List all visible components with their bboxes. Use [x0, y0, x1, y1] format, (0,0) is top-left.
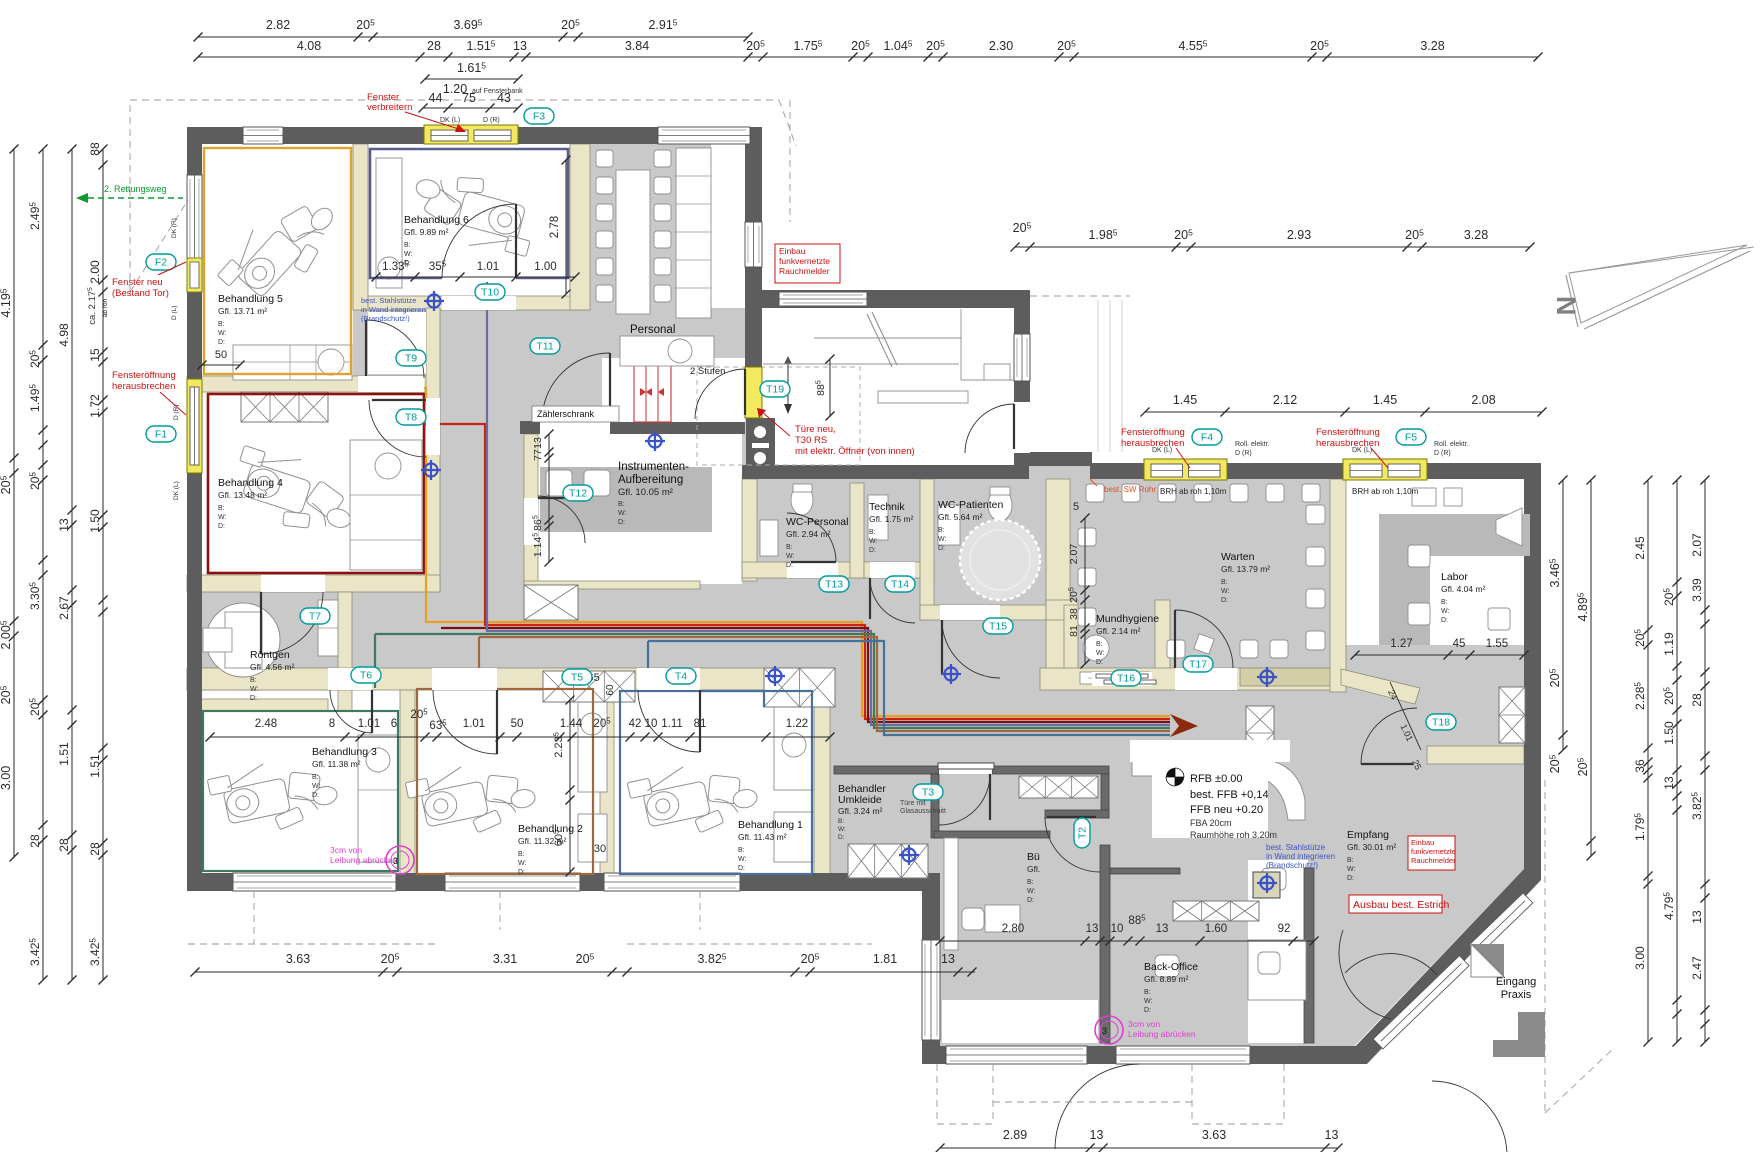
svg-text:1.51: 1.51: [57, 742, 71, 766]
svg-text:T30 RS: T30 RS: [795, 435, 827, 446]
svg-text:BRH ab roh 1,10m: BRH ab roh 1,10m: [1352, 487, 1419, 496]
svg-text:Gfl. 30.01 m²: Gfl. 30.01 m²: [1347, 842, 1396, 852]
svg-text:2.00: 2.00: [88, 260, 102, 284]
svg-text:T9: T9: [405, 353, 417, 365]
svg-text:W:: W:: [1441, 608, 1449, 615]
svg-text:D (L): D (L): [171, 306, 178, 320]
svg-text:best. SW Rohr: best. SW Rohr: [1104, 485, 1156, 494]
svg-text:T12: T12: [569, 488, 587, 500]
svg-text:B:: B:: [1027, 879, 1034, 886]
svg-text:W:: W:: [218, 330, 226, 337]
svg-text:13: 13: [1690, 910, 1704, 924]
svg-text:44: 44: [429, 91, 443, 105]
svg-text:W:: W:: [518, 860, 526, 867]
svg-text:B:: B:: [1441, 599, 1448, 606]
svg-text:43: 43: [497, 91, 511, 105]
svg-text:Behandlung 2: Behandlung 2: [518, 823, 583, 835]
svg-text:Ausbau best. Estrich: Ausbau best. Estrich: [1353, 899, 1449, 911]
svg-text:Zählerschrank: Zählerschrank: [537, 409, 595, 419]
svg-text:best. Stahlstütze: best. Stahlstütze: [1266, 843, 1326, 852]
svg-text:Leibung abrücken: Leibung abrücken: [330, 855, 398, 865]
svg-text:B:: B:: [218, 321, 225, 328]
svg-text:1.01: 1.01: [463, 718, 485, 730]
svg-text:T2: T2: [1077, 827, 1089, 839]
svg-text:Warten: Warten: [1221, 551, 1255, 563]
svg-text:2.47: 2.47: [1690, 956, 1704, 980]
svg-text:3.00: 3.00: [0, 766, 13, 790]
svg-text:75: 75: [462, 91, 476, 105]
svg-text:45: 45: [1453, 638, 1466, 650]
svg-text:92: 92: [1278, 923, 1291, 935]
svg-text:13: 13: [1662, 776, 1676, 790]
svg-text:D:: D:: [1221, 597, 1228, 604]
svg-text:Behandlung 6: Behandlung 6: [404, 214, 469, 226]
svg-text:Gfl. 2.14 m²: Gfl. 2.14 m²: [1096, 626, 1141, 636]
svg-text:1.22: 1.22: [786, 718, 808, 730]
svg-text:W:: W:: [312, 783, 320, 790]
svg-text:Rauchmelder: Rauchmelder: [779, 266, 830, 276]
svg-text:Gfl. 4.04 m²: Gfl. 4.04 m²: [1441, 584, 1486, 594]
svg-text:W:: W:: [1144, 998, 1152, 1005]
svg-text:T16: T16: [1117, 673, 1135, 685]
svg-text:D:: D:: [1096, 659, 1103, 666]
svg-text:13: 13: [1325, 1128, 1339, 1142]
svg-text:13: 13: [532, 437, 544, 449]
svg-text:W:: W:: [1347, 866, 1355, 873]
svg-text:T13: T13: [825, 579, 843, 591]
svg-text:10: 10: [1111, 923, 1124, 935]
svg-text:2.07: 2.07: [1690, 533, 1704, 557]
svg-text:50: 50: [215, 349, 227, 361]
svg-text:(Brandschutz!): (Brandschutz!): [1266, 861, 1318, 870]
svg-text:3.00: 3.00: [1633, 946, 1647, 970]
svg-text:1.27: 1.27: [1390, 638, 1412, 650]
svg-text:3.63: 3.63: [286, 952, 310, 966]
svg-text:T19: T19: [766, 384, 784, 396]
svg-text:Gfl.: Gfl.: [1027, 864, 1040, 874]
svg-text:28: 28: [57, 838, 71, 852]
svg-text:D:: D:: [1347, 875, 1354, 882]
svg-text:Gfl. 13.48 m²: Gfl. 13.48 m²: [218, 490, 267, 500]
svg-text:2.82: 2.82: [266, 18, 290, 32]
svg-text:ab roh: ab roh: [102, 298, 109, 317]
svg-text:herausbrechen: herausbrechen: [112, 381, 175, 392]
svg-text:T14: T14: [891, 579, 909, 591]
svg-text:B:: B:: [738, 847, 745, 854]
svg-text:3.31: 3.31: [493, 952, 517, 966]
svg-text:42: 42: [629, 718, 642, 730]
svg-text:13: 13: [1156, 923, 1169, 935]
svg-text:38: 38: [1068, 608, 1080, 620]
svg-text:D:: D:: [1441, 617, 1448, 624]
svg-text:2.12: 2.12: [1273, 393, 1297, 407]
svg-text:T15: T15: [989, 621, 1007, 633]
svg-text:Instrumenten-: Instrumenten-: [618, 461, 689, 473]
svg-text:Gfl. 3.24 m²: Gfl. 3.24 m²: [838, 806, 883, 816]
svg-text:1.11: 1.11: [661, 718, 683, 730]
svg-text:2.48: 2.48: [255, 718, 277, 730]
svg-text:B:: B:: [518, 851, 525, 858]
svg-text:T4: T4: [675, 671, 687, 683]
svg-text:2.80: 2.80: [1002, 923, 1024, 935]
svg-text:T11: T11: [536, 341, 553, 353]
svg-text:50: 50: [511, 718, 524, 730]
svg-text:13: 13: [1086, 923, 1099, 935]
svg-text:Fensteröffnung: Fensteröffnung: [1316, 427, 1380, 438]
svg-text:Eingang: Eingang: [1496, 976, 1536, 988]
svg-text:Fensteröffnung: Fensteröffnung: [1121, 427, 1185, 438]
svg-text:1.45: 1.45: [1373, 393, 1397, 407]
svg-text:Roll. elektr.: Roll. elektr.: [1434, 441, 1469, 448]
svg-text:5: 5: [1073, 501, 1079, 513]
svg-text:Gfl. 13.71 m²: Gfl. 13.71 m²: [218, 306, 267, 316]
svg-text:funkvernetzte: funkvernetzte: [1411, 847, 1456, 856]
svg-text:F5: F5: [1405, 432, 1417, 444]
svg-text:herausbrechen: herausbrechen: [1121, 438, 1184, 449]
svg-text:funkvernetzte: funkvernetzte: [779, 256, 830, 266]
svg-text:Gfl. 13.79 m²: Gfl. 13.79 m²: [1221, 564, 1270, 574]
svg-text:T7: T7: [309, 611, 321, 623]
svg-text:WC-Personal: WC-Personal: [786, 516, 848, 528]
svg-text:D (R): D (R): [1235, 450, 1252, 457]
svg-text:81: 81: [694, 718, 707, 730]
svg-text:28: 28: [427, 39, 441, 53]
svg-text:W:: W:: [1027, 888, 1035, 895]
svg-text:F1: F1: [155, 429, 167, 441]
svg-text:BRH ab roh 1,10m: BRH ab roh 1,10m: [1160, 487, 1227, 496]
svg-text:FBA 20cm: FBA 20cm: [1190, 818, 1232, 828]
svg-text:verbreitern: verbreitern: [367, 102, 412, 113]
svg-text:8: 8: [329, 718, 335, 730]
svg-text:Praxis: Praxis: [1501, 989, 1532, 1001]
svg-text:Back-Office: Back-Office: [1144, 961, 1198, 973]
svg-text:36: 36: [1633, 759, 1647, 773]
svg-text:Gfl. 10.05 m²: Gfl. 10.05 m²: [618, 487, 673, 498]
svg-text:W:: W:: [218, 514, 226, 521]
svg-text:D:: D:: [786, 562, 793, 569]
svg-text:4.08: 4.08: [297, 39, 321, 53]
svg-text:Türe mit: Türe mit: [900, 800, 926, 807]
svg-text:1.00: 1.00: [534, 261, 556, 273]
svg-text:FFB neu +0.20: FFB neu +0.20: [1190, 804, 1263, 816]
svg-text:Roll. elektr.: Roll. elektr.: [1235, 441, 1270, 448]
svg-text:2.93: 2.93: [1287, 228, 1311, 242]
svg-text:W:: W:: [404, 251, 412, 258]
svg-text:Einbau: Einbau: [1411, 838, 1434, 847]
svg-text:3.63: 3.63: [1202, 1128, 1226, 1142]
svg-text:60: 60: [605, 684, 616, 696]
svg-text:4.98: 4.98: [57, 323, 71, 347]
svg-text:13: 13: [57, 518, 71, 532]
svg-text:W:: W:: [1221, 588, 1229, 595]
svg-text:88: 88: [88, 142, 102, 156]
svg-text:B:: B:: [218, 505, 225, 512]
svg-text:B:: B:: [618, 501, 625, 508]
svg-text:Gfl. 9.89 m²: Gfl. 9.89 m²: [404, 227, 449, 237]
svg-text:F3: F3: [533, 111, 545, 123]
svg-text:T17: T17: [1189, 659, 1207, 671]
svg-text:3cm von: 3cm von: [330, 845, 362, 855]
svg-text:T8: T8: [405, 412, 417, 424]
svg-text:2.78: 2.78: [549, 216, 561, 238]
svg-text:Personal: Personal: [630, 324, 675, 336]
svg-text:Umkleide: Umkleide: [838, 794, 882, 806]
svg-text:B:: B:: [786, 544, 793, 551]
svg-text:B:: B:: [1144, 989, 1151, 996]
svg-text:1.50: 1.50: [88, 509, 102, 533]
svg-text:3.39: 3.39: [1690, 578, 1704, 602]
svg-text:D:: D:: [218, 339, 225, 346]
svg-text:3.28: 3.28: [1420, 39, 1444, 53]
svg-text:Einbau: Einbau: [779, 246, 806, 256]
svg-text:D:: D:: [250, 695, 257, 702]
svg-text:Gfl. 11.38 m²: Gfl. 11.38 m²: [312, 759, 361, 769]
svg-text:ca. 2.175: ca. 2.175: [87, 287, 98, 325]
svg-text:T10: T10: [481, 287, 499, 299]
svg-text:D:: D:: [738, 865, 745, 872]
svg-text:13: 13: [1090, 1128, 1104, 1142]
svg-text:B:: B:: [838, 818, 844, 825]
svg-text:F2: F2: [155, 257, 167, 269]
svg-text:B:: B:: [1221, 579, 1228, 586]
svg-text:Glasausschnitt: Glasausschnitt: [900, 808, 946, 815]
svg-text:W:: W:: [618, 510, 626, 517]
svg-text:2.89: 2.89: [1003, 1128, 1027, 1142]
svg-text:13: 13: [941, 952, 955, 966]
svg-text:D:: D:: [404, 260, 411, 267]
svg-text:Behandlung 1: Behandlung 1: [738, 819, 803, 831]
svg-text:3cm von: 3cm von: [1128, 1019, 1160, 1029]
svg-text:Gfl. 11.32 m²: Gfl. 11.32 m²: [518, 836, 567, 846]
svg-text:1.01: 1.01: [477, 261, 499, 273]
svg-text:D (R): D (R): [483, 117, 500, 124]
svg-text:Technik: Technik: [869, 501, 905, 513]
svg-text:Behandlung 5: Behandlung 5: [218, 293, 283, 305]
svg-text:3: 3: [393, 856, 398, 866]
svg-text:1.44: 1.44: [560, 718, 583, 730]
svg-text:D:: D:: [518, 869, 525, 876]
svg-text:30: 30: [594, 843, 606, 855]
svg-text:28: 28: [88, 842, 102, 856]
svg-text:10: 10: [645, 718, 658, 730]
svg-text:B:: B:: [404, 242, 411, 249]
svg-text:RFB ±0.00: RFB ±0.00: [1190, 773, 1243, 785]
svg-text:1.55: 1.55: [1486, 638, 1508, 650]
svg-text:D:: D:: [838, 834, 845, 841]
svg-text:W:: W:: [250, 686, 258, 693]
svg-text:Mundhygiene: Mundhygiene: [1096, 613, 1159, 625]
svg-text:1.51: 1.51: [88, 754, 102, 778]
svg-text:N: N: [1551, 296, 1581, 316]
svg-text:DK (L): DK (L): [173, 481, 180, 500]
svg-text:Röntgen: Röntgen: [250, 649, 290, 661]
svg-text:D:: D:: [938, 545, 945, 552]
svg-text:1.60: 1.60: [1205, 923, 1227, 935]
svg-text:B:: B:: [312, 774, 319, 781]
svg-text:F4: F4: [1201, 432, 1213, 444]
svg-text:Gfl. 2.94 m²: Gfl. 2.94 m²: [786, 529, 831, 539]
svg-text:D:: D:: [312, 792, 319, 799]
svg-text:2.08: 2.08: [1471, 393, 1495, 407]
svg-text:W:: W:: [738, 856, 746, 863]
svg-text:W:: W:: [838, 826, 846, 833]
svg-text:D:: D:: [218, 523, 225, 530]
svg-text:T5: T5: [571, 672, 583, 684]
svg-text:1.45: 1.45: [1173, 393, 1197, 407]
svg-text:2.67: 2.67: [57, 596, 71, 620]
svg-text:Empfang: Empfang: [1347, 829, 1389, 841]
svg-text:Rauchmelder: Rauchmelder: [1411, 856, 1456, 865]
svg-text:2.07: 2.07: [1068, 544, 1080, 565]
svg-text:28: 28: [1690, 693, 1704, 707]
svg-text:Bü: Bü: [1027, 851, 1040, 863]
svg-text:Behandlung 3: Behandlung 3: [312, 746, 377, 758]
svg-text:28: 28: [28, 834, 42, 848]
svg-text:3: 3: [1102, 1026, 1107, 1036]
svg-text:Türe neu,: Türe neu,: [795, 424, 836, 435]
svg-text:1.81: 1.81: [873, 952, 897, 966]
svg-text:Fensteröffnung: Fensteröffnung: [112, 370, 176, 381]
svg-text:B:: B:: [1096, 641, 1103, 648]
svg-text:Behandlung 4: Behandlung 4: [218, 477, 283, 489]
svg-text:Raumhöhe roh 3.20m: Raumhöhe roh 3.20m: [1190, 830, 1277, 840]
svg-text:1.72: 1.72: [88, 394, 102, 418]
svg-text:1.50: 1.50: [1662, 721, 1676, 745]
svg-text:Gfl. 4.56 m²: Gfl. 4.56 m²: [250, 662, 295, 672]
svg-text:(Bestand Tor): (Bestand Tor): [112, 288, 169, 299]
svg-text:D:: D:: [1027, 897, 1034, 904]
svg-text:in Wand integrieren: in Wand integrieren: [361, 305, 426, 314]
svg-text:15: 15: [88, 348, 102, 362]
svg-text:81: 81: [1068, 625, 1080, 637]
svg-text:3.28: 3.28: [1464, 228, 1488, 242]
svg-text:D:: D:: [1144, 1007, 1151, 1014]
svg-text:T18: T18: [1432, 717, 1450, 729]
svg-text:mit elektr. Öffner (von innen): mit elektr. Öffner (von innen): [795, 446, 915, 457]
svg-text:Gfl. 5.64 m²: Gfl. 5.64 m²: [938, 512, 983, 522]
svg-text:(Brandschutz!): (Brandschutz!): [361, 314, 410, 323]
svg-text:2.45: 2.45: [1633, 536, 1647, 560]
svg-text:D:: D:: [869, 547, 876, 554]
svg-text:W:: W:: [1096, 650, 1104, 657]
svg-text:13: 13: [513, 39, 527, 53]
svg-text:B:: B:: [869, 529, 876, 536]
svg-text:Gfl. 8.89 m²: Gfl. 8.89 m²: [1144, 974, 1189, 984]
svg-text:6: 6: [391, 718, 397, 730]
svg-text:best. Stahlstütze: best. Stahlstütze: [361, 296, 416, 305]
svg-text:T3: T3: [922, 787, 934, 799]
svg-text:Fenster neu: Fenster neu: [112, 277, 163, 288]
svg-text:DK (L): DK (L): [440, 117, 460, 124]
svg-text:77: 77: [532, 449, 544, 461]
svg-text:Gfl. 11.43 m²: Gfl. 11.43 m²: [738, 832, 787, 842]
svg-text:Gfl. 1.75 m²: Gfl. 1.75 m²: [869, 514, 914, 524]
svg-text:2. Rettungsweg: 2. Rettungsweg: [104, 184, 167, 194]
svg-text:in Wand integrieren: in Wand integrieren: [1266, 852, 1335, 861]
svg-text:2.30: 2.30: [989, 39, 1013, 53]
svg-text:WC-Patienten: WC-Patienten: [938, 499, 1004, 511]
svg-text:best. FFB +0,14: best. FFB +0,14: [1190, 789, 1269, 801]
svg-text:W:: W:: [869, 538, 877, 545]
svg-text:B:: B:: [1347, 857, 1354, 864]
svg-text:W:: W:: [938, 536, 946, 543]
svg-text:D:: D:: [618, 519, 625, 526]
svg-text:Leibung abrücken: Leibung abrücken: [1128, 1029, 1196, 1039]
svg-text:Aufbereitung: Aufbereitung: [618, 474, 683, 486]
svg-text:D (R): D (R): [1434, 450, 1451, 457]
svg-text:T6: T6: [360, 670, 372, 682]
svg-text:herausbrechen: herausbrechen: [1316, 438, 1379, 449]
svg-text:1.19: 1.19: [1662, 632, 1676, 656]
svg-text:Labor: Labor: [1441, 571, 1468, 583]
svg-text:B:: B:: [250, 677, 257, 684]
svg-text:1.01: 1.01: [358, 718, 380, 730]
svg-text:DK (R): DK (R): [171, 218, 178, 238]
svg-text:W:: W:: [786, 553, 794, 560]
svg-text:3.84: 3.84: [625, 39, 649, 53]
svg-text:B:: B:: [938, 527, 945, 534]
